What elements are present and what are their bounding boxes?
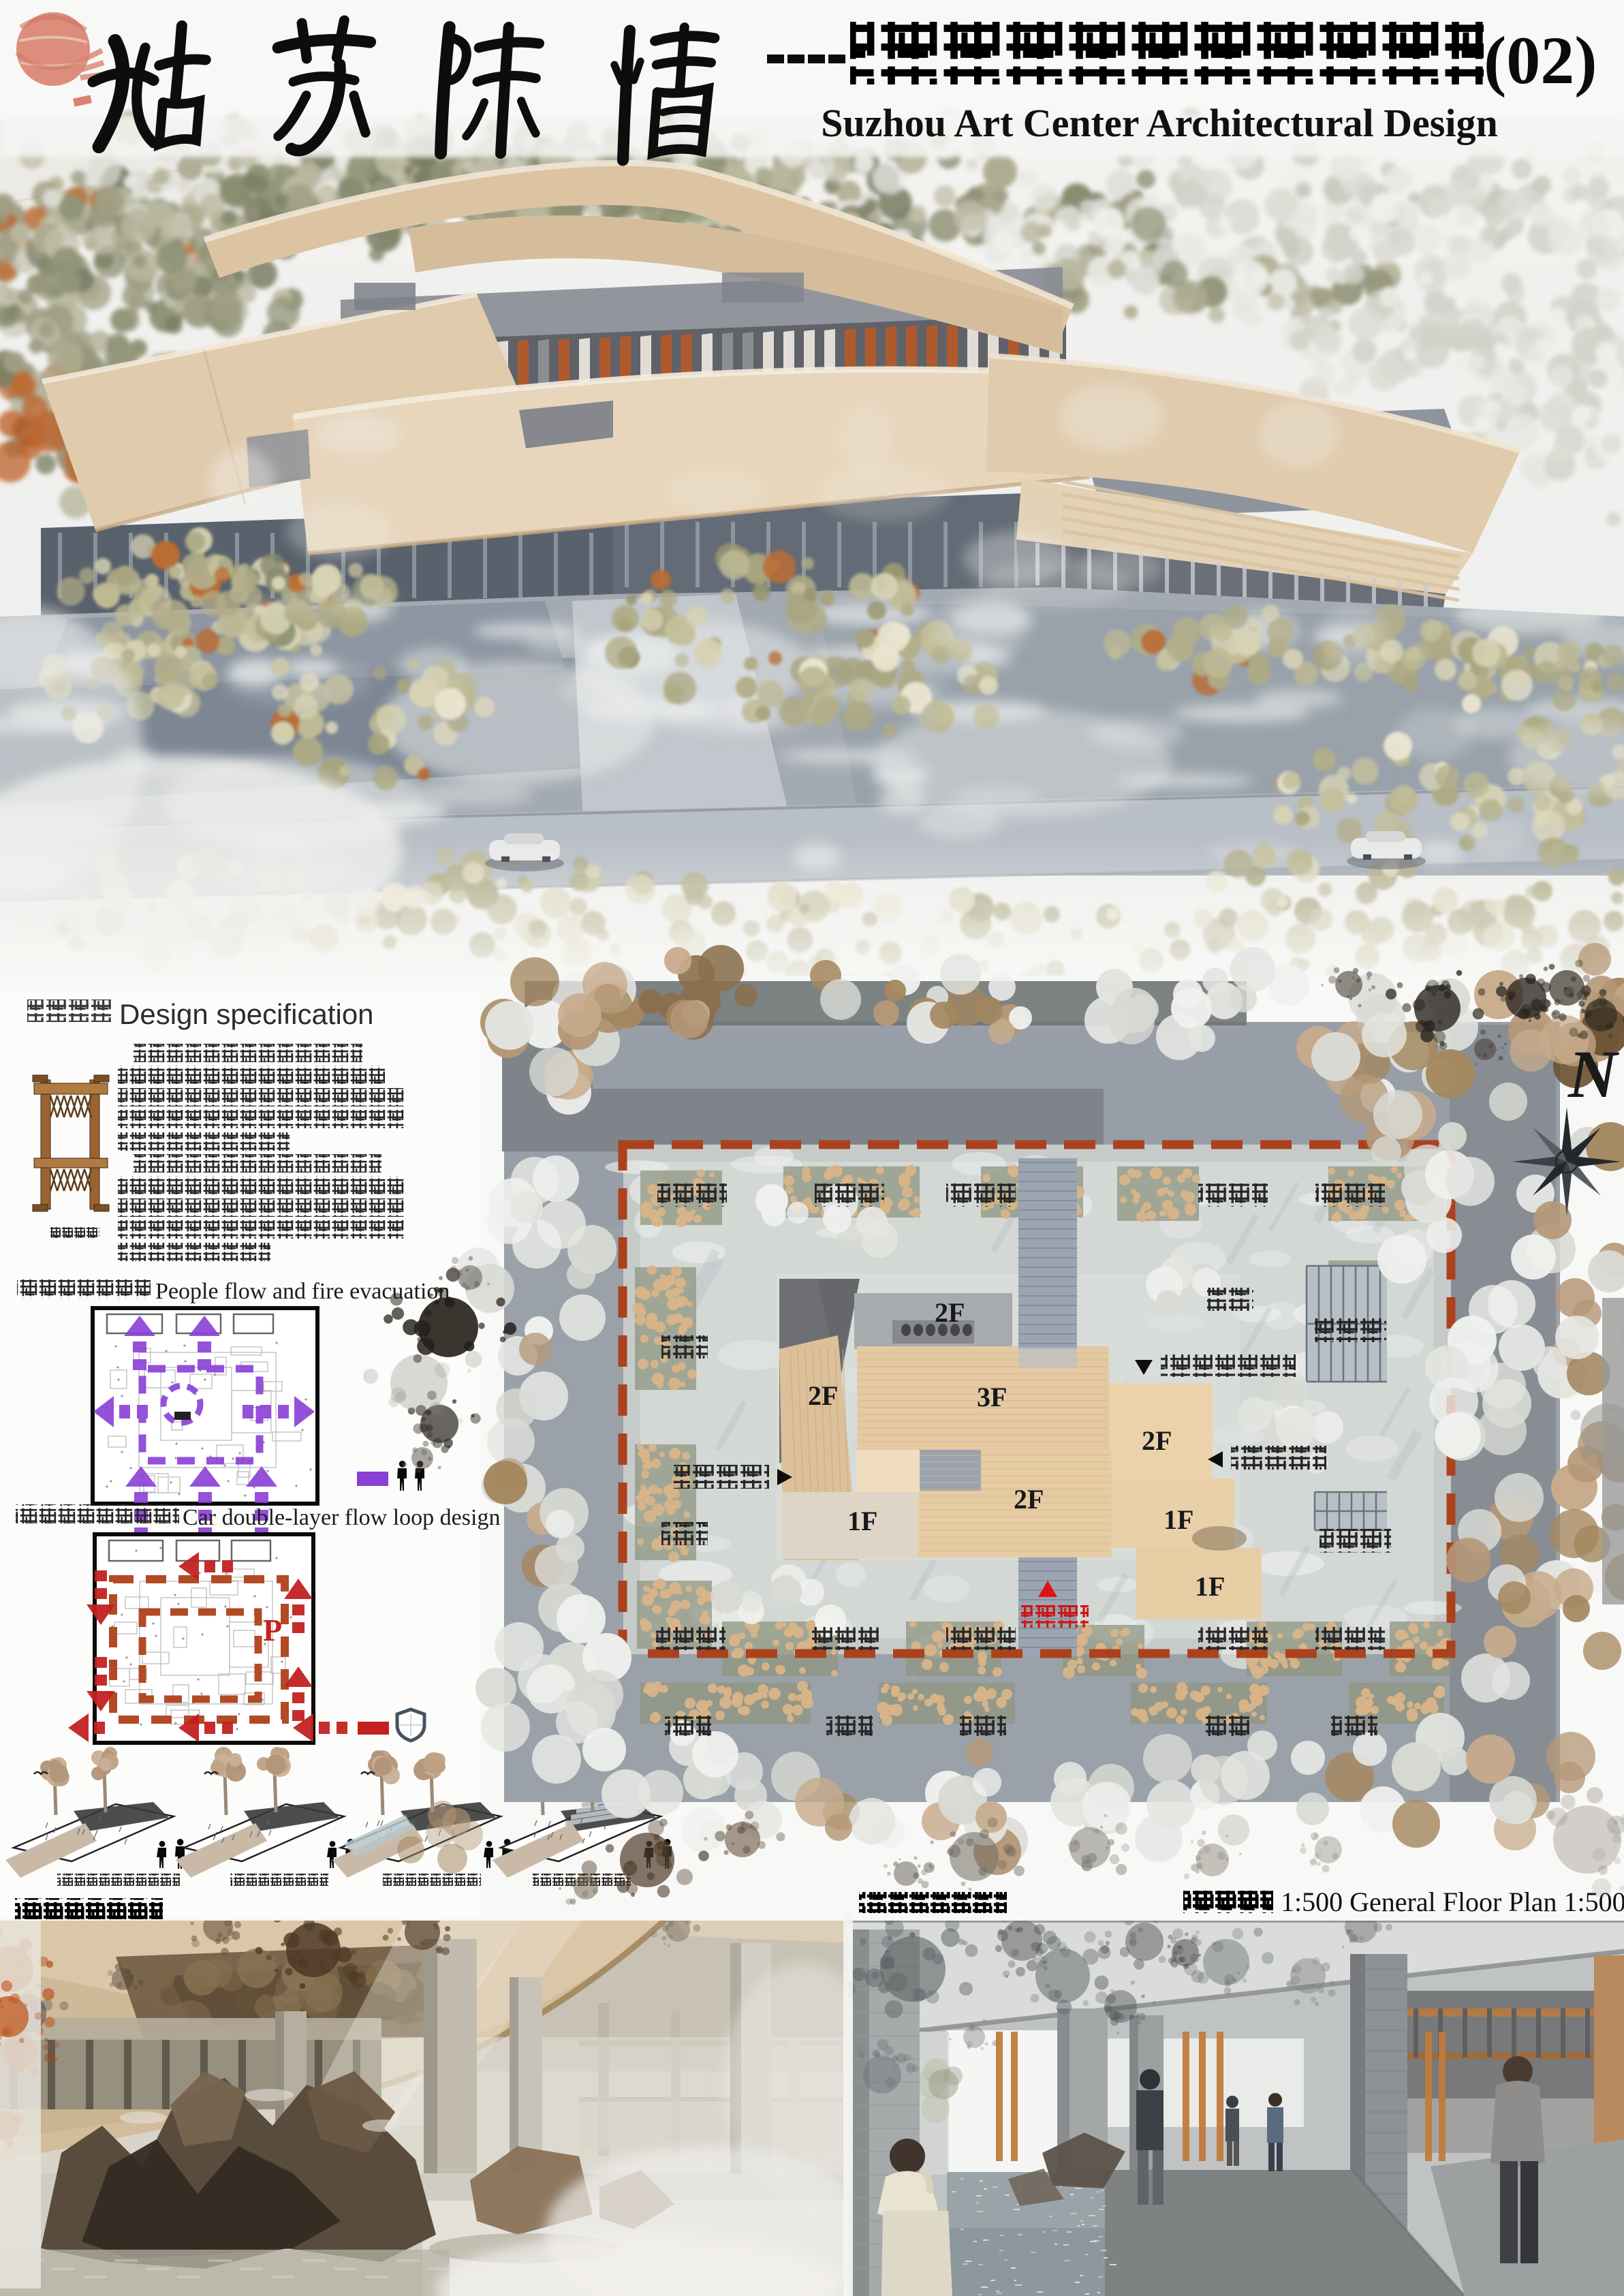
svg-text:2F: 2F xyxy=(808,1380,838,1411)
svg-text:Design specification: Design specification xyxy=(119,998,374,1030)
svg-text:2F: 2F xyxy=(1014,1484,1044,1515)
svg-text:3F: 3F xyxy=(977,1382,1007,1412)
svg-text:(02): (02) xyxy=(1484,22,1597,98)
svg-text:Car double-layer flow loop: Car double-layer flow loop design xyxy=(183,1505,500,1530)
svg-text:P: P xyxy=(263,1613,282,1647)
svg-text:1:500 General Floor Plan 1: 1:500 General Floor Plan 1:500 xyxy=(1281,1887,1624,1917)
svg-text:2F: 2F xyxy=(1142,1425,1172,1456)
svg-text:2F: 2F xyxy=(935,1297,965,1328)
svg-text:1F: 1F xyxy=(1195,1571,1225,1602)
svg-text:People flow and fire evacu: People flow and fire evacuation xyxy=(155,1279,450,1304)
svg-text:1F: 1F xyxy=(1164,1504,1193,1535)
svg-text:1F: 1F xyxy=(847,1506,877,1536)
svg-text:Suzhou Art Center Architectura: Suzhou Art Center Architectural Design xyxy=(821,101,1497,145)
svg-text:N: N xyxy=(1567,1036,1620,1112)
